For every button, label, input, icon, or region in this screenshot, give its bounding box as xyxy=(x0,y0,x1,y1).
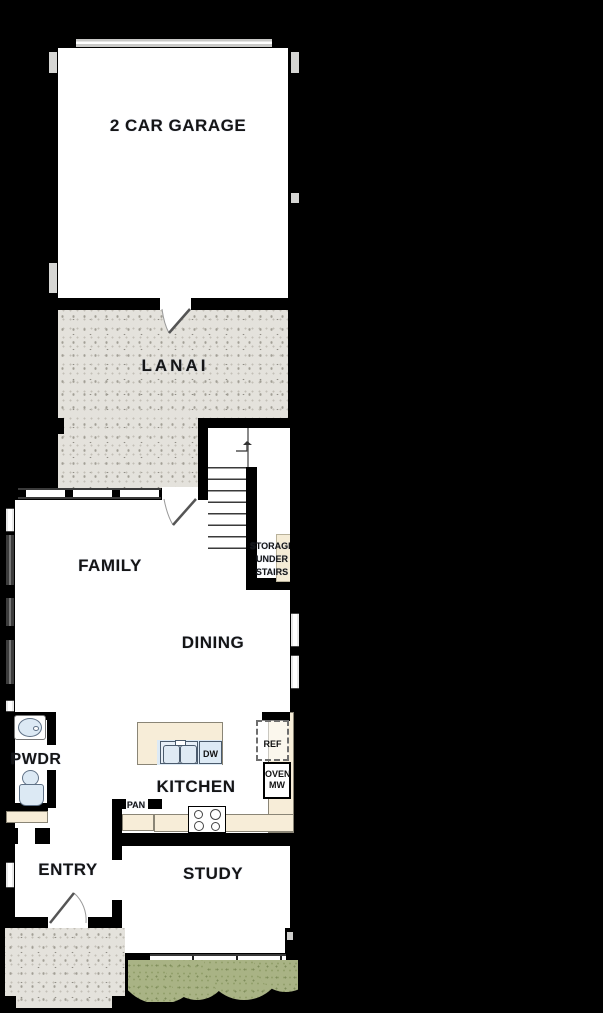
right-exterior-wall xyxy=(290,418,300,966)
sink-basin xyxy=(163,745,180,764)
porch-post xyxy=(112,996,126,1008)
entry-bottom-wall xyxy=(88,917,122,928)
garage-door-panel xyxy=(76,39,272,47)
stove-icon xyxy=(188,806,226,833)
wall-joint xyxy=(291,52,299,73)
burner xyxy=(194,821,204,831)
shrubs xyxy=(128,960,298,1002)
oven-microwave-box: OVEN MW xyxy=(263,762,291,799)
dining-window xyxy=(291,613,299,647)
entry-study-divider xyxy=(112,833,122,860)
burner xyxy=(211,822,220,831)
study-label: STUDY xyxy=(163,864,263,884)
porch-floor xyxy=(5,928,125,1008)
entry-window xyxy=(6,862,14,888)
faucet-icon xyxy=(175,740,186,746)
powder-closet-shelf xyxy=(6,811,48,823)
garage-door-swing xyxy=(157,297,193,337)
wall-joint xyxy=(287,932,293,940)
oven-label: OVEN xyxy=(265,769,289,780)
microwave-label: MW xyxy=(265,780,289,791)
refrigerator-label: REF xyxy=(264,739,282,749)
dining-window xyxy=(291,655,299,689)
floor-plan: 2 CAR GARAGE LANAI STORAGE UNDER STAIRS xyxy=(0,0,603,1013)
lanai-left-wall xyxy=(46,298,58,490)
dishwasher-label: DW xyxy=(203,749,218,759)
kitchen-label: KITCHEN xyxy=(146,777,246,797)
toilet-bowl-icon xyxy=(19,784,44,806)
stair-treads xyxy=(208,467,246,559)
entry-label: ENTRY xyxy=(28,860,108,880)
powder-right-wall xyxy=(47,770,56,808)
sink-faucet-icon xyxy=(33,726,39,731)
lanai-floor-lower xyxy=(57,418,198,488)
closet-wall-stub xyxy=(5,828,18,844)
dining-label: DINING xyxy=(163,633,263,653)
family-label: FAMILY xyxy=(60,556,160,576)
stairs-up-arrow-icon xyxy=(234,440,256,454)
porch-post xyxy=(3,996,16,1008)
kitchen-sink-icon xyxy=(160,741,198,764)
entry-bottom-wall xyxy=(5,917,48,928)
stair-left-wall xyxy=(198,428,208,490)
powder-label: PWDR xyxy=(6,751,66,769)
front-door-swing xyxy=(44,885,92,925)
wall-joint xyxy=(291,193,299,203)
burner xyxy=(194,810,203,819)
powder-right-wall xyxy=(47,712,56,745)
left-window xyxy=(6,508,14,532)
lanai-wall-stub xyxy=(46,418,64,434)
garage-floor xyxy=(58,48,288,298)
pantry-shelf xyxy=(122,814,154,831)
pantry-wall-stub xyxy=(148,799,162,809)
family-window-band xyxy=(18,488,161,499)
lanai-label: LANAI xyxy=(135,356,215,376)
left-wall-segment xyxy=(6,598,14,626)
refrigerator-box: REF xyxy=(256,720,289,761)
closet-wall-stub xyxy=(35,828,50,844)
wall-joint xyxy=(49,263,57,293)
left-wall-segment xyxy=(6,640,14,684)
stair-top-wall xyxy=(198,418,300,428)
burner xyxy=(210,809,221,820)
pantry-label: PAN xyxy=(122,800,150,810)
dishwasher-box: DW xyxy=(199,741,222,764)
family-door-swing xyxy=(160,487,200,529)
left-window xyxy=(6,700,14,712)
wall-joint xyxy=(49,52,57,73)
garage-label: 2 CAR GARAGE xyxy=(88,116,268,136)
left-wall-segment xyxy=(6,535,14,585)
lanai-right-wall xyxy=(288,310,300,420)
sink-basin xyxy=(180,745,197,764)
kitchen-bottom-wall xyxy=(112,833,300,846)
